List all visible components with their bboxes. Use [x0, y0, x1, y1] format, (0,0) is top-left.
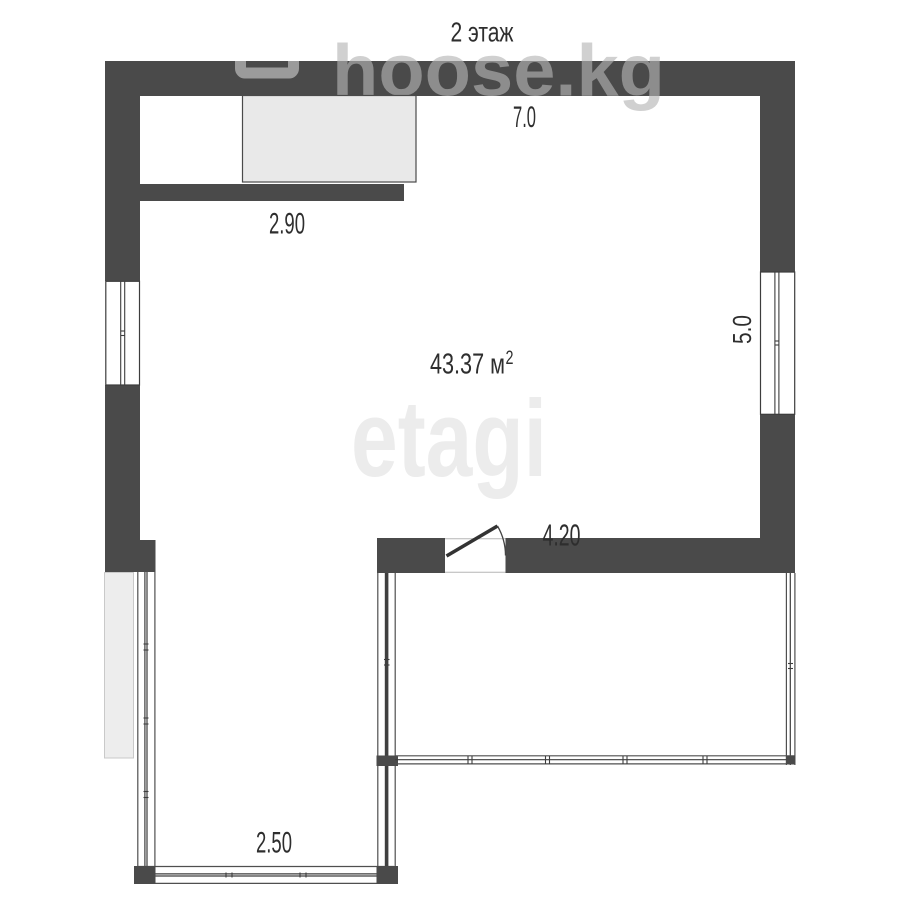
svg-text:etagi: etagi: [351, 378, 547, 500]
svg-text:2.90: 2.90: [269, 208, 305, 241]
svg-text:2: 2: [506, 348, 514, 369]
svg-text:4.20: 4.20: [543, 518, 581, 553]
svg-text:5.0: 5.0: [727, 315, 757, 344]
svg-text:2.50: 2.50: [256, 827, 292, 860]
svg-text:7.0: 7.0: [513, 101, 536, 134]
svg-text:43.37 м: 43.37 м: [430, 349, 505, 381]
